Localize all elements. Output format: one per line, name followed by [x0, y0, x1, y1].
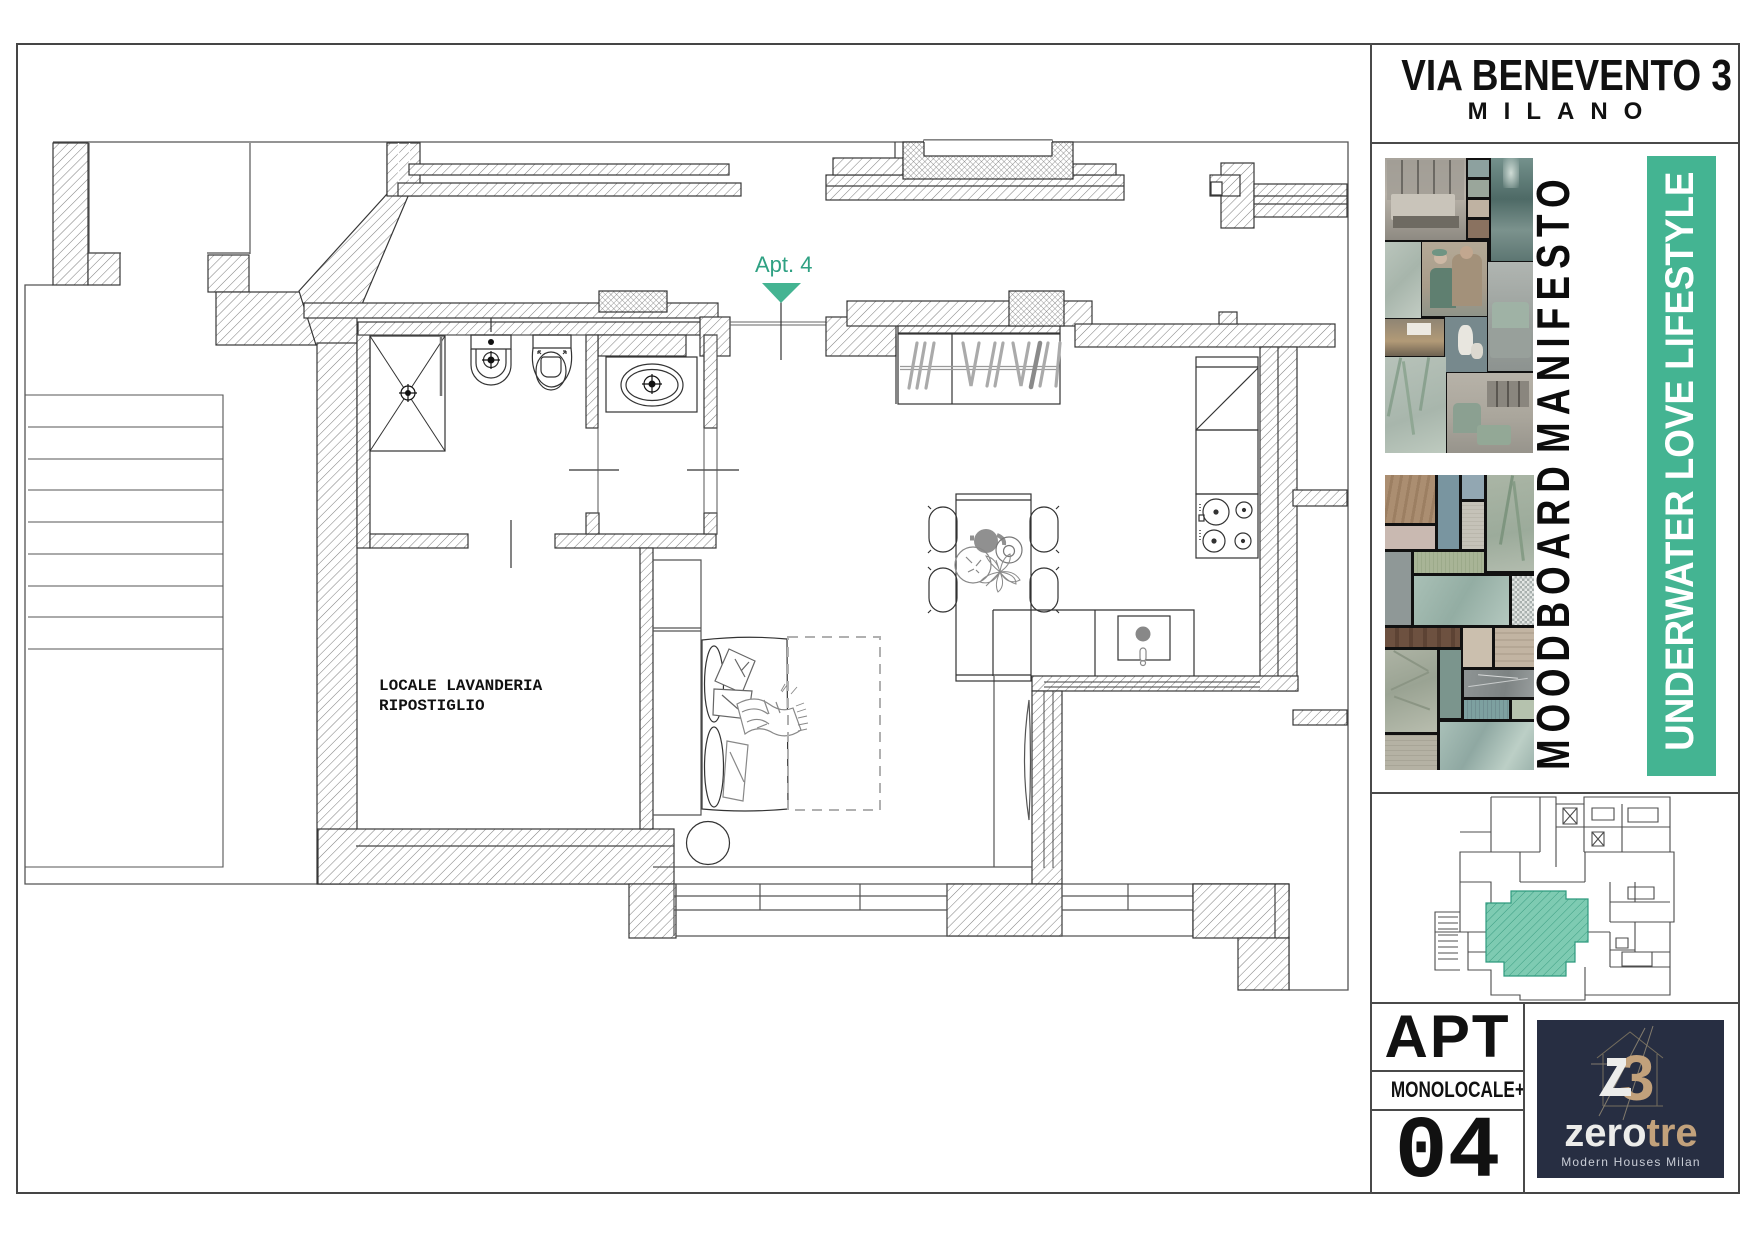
svg-text:LOCALE LAVANDERIA: LOCALE LAVANDERIA — [379, 677, 543, 695]
svg-text:3: 3 — [1619, 1042, 1655, 1114]
svg-text:zerotre: zerotre — [1564, 1111, 1697, 1155]
svg-text:RIPOSTIGLIO: RIPOSTIGLIO — [379, 697, 485, 715]
svg-text:Apt. 4: Apt. 4 — [755, 252, 812, 277]
svg-text:Modern Houses Milan: Modern Houses Milan — [1561, 1155, 1701, 1169]
